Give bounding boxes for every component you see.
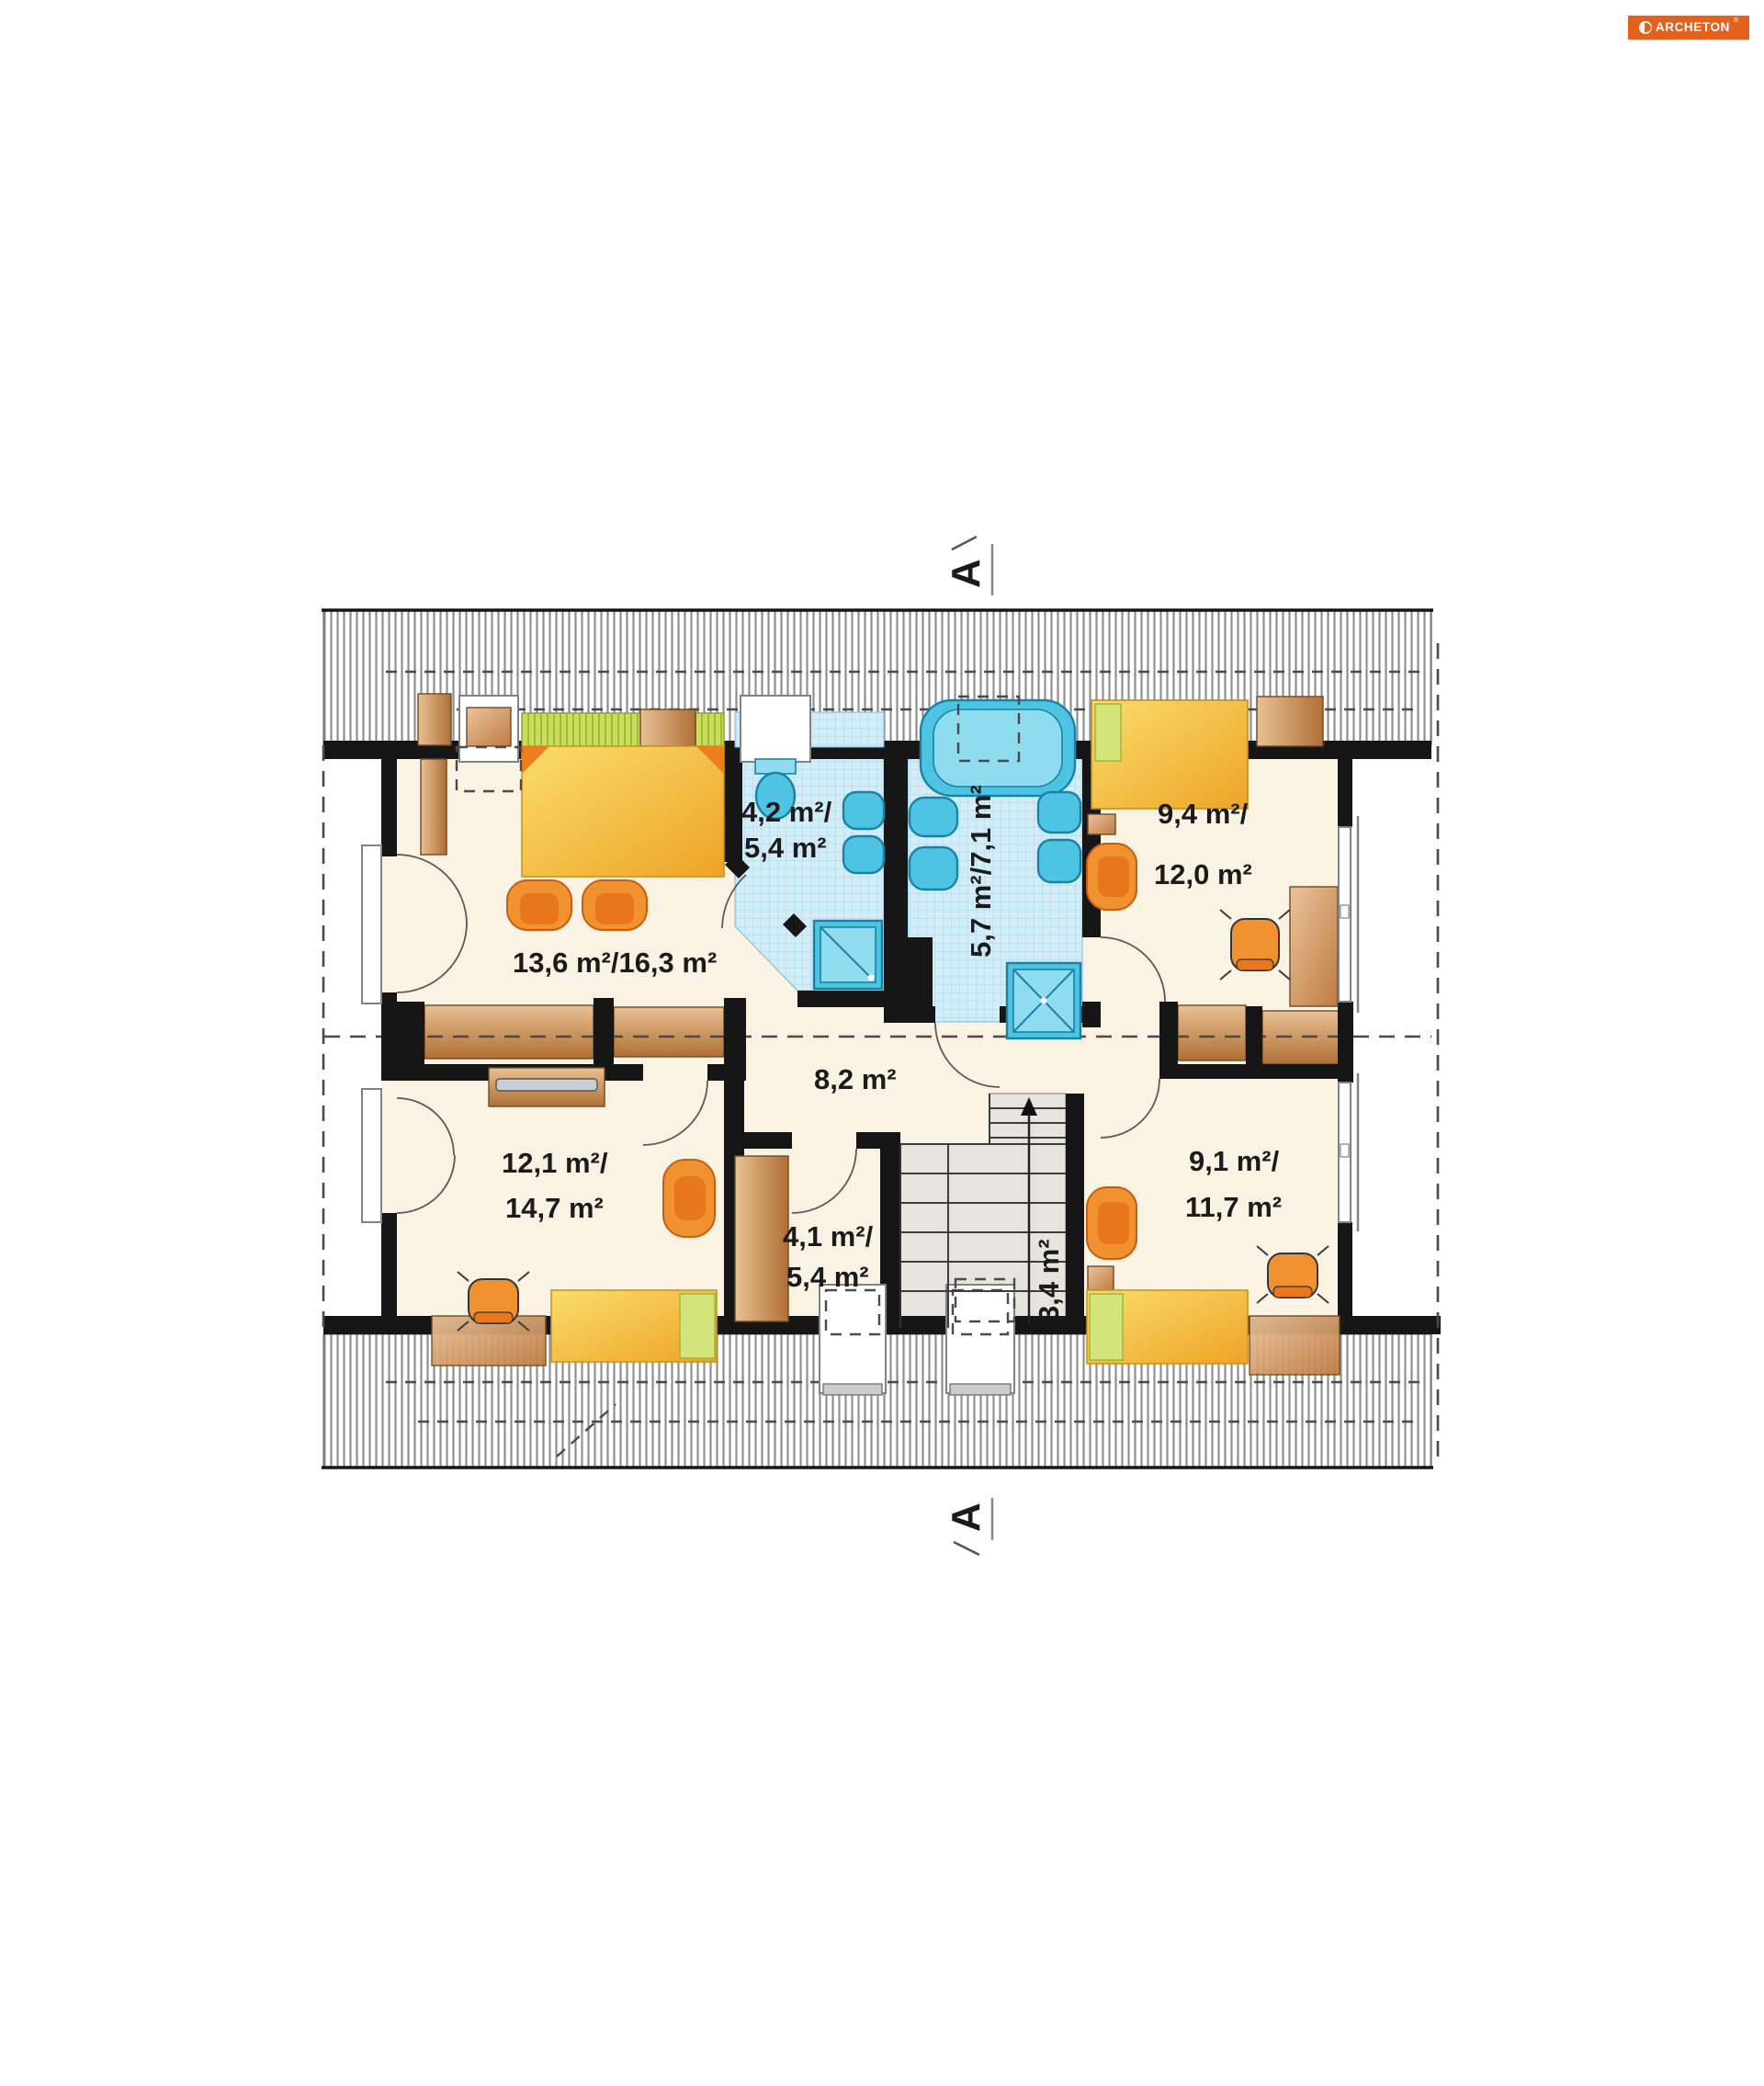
shower bbox=[1007, 963, 1080, 1038]
bed bbox=[551, 1290, 717, 1362]
area-label-hall: 8,2 m² bbox=[814, 1063, 897, 1095]
section-letter-bottom: A bbox=[944, 1502, 989, 1532]
area-label-room-top-right-2: 12,0 m² bbox=[1154, 858, 1252, 890]
bathtub bbox=[921, 697, 1075, 796]
office-chair bbox=[1257, 1246, 1329, 1303]
area-label-room-bottom-left-1: 12,1 m²/ bbox=[502, 1147, 608, 1179]
bed bbox=[1091, 700, 1248, 809]
shower bbox=[814, 921, 882, 989]
archeton-logo-icon bbox=[1639, 21, 1652, 34]
section-marker-bottom: A bbox=[944, 1498, 992, 1555]
area-label-bathroom-small-2: 5,4 m² bbox=[744, 832, 827, 864]
section-marker-top: A bbox=[944, 537, 992, 595]
floor-plan-page: ARCHETON ® bbox=[0, 0, 1764, 2086]
desk bbox=[1249, 1316, 1340, 1375]
area-label-bathroom-small-1: 4,2 m²/ bbox=[741, 796, 832, 828]
toilet bbox=[910, 798, 957, 836]
window bbox=[1339, 1073, 1358, 1231]
area-label-wardrobe-2: 5,4 m² bbox=[786, 1261, 869, 1293]
skylight-window bbox=[741, 696, 810, 762]
skylight-window bbox=[820, 1285, 886, 1395]
window bbox=[1339, 816, 1358, 1013]
shelf bbox=[489, 1068, 605, 1106]
armchair bbox=[663, 1160, 715, 1237]
armchair bbox=[582, 880, 647, 930]
bidet bbox=[910, 847, 957, 890]
area-label-wardrobe-1: 4,1 m²/ bbox=[783, 1220, 874, 1253]
area-label-bathroom-large: 5,7 m²/7,1 m² bbox=[965, 785, 997, 958]
desk bbox=[1290, 887, 1338, 1006]
registered-mark: ® bbox=[1734, 17, 1738, 24]
bed bbox=[1087, 1290, 1248, 1364]
area-label-room-bottom-left-2: 14,7 m² bbox=[505, 1192, 604, 1224]
archeton-logo-text: ARCHETON bbox=[1656, 21, 1730, 34]
archeton-logo: ARCHETON ® bbox=[1628, 16, 1749, 40]
area-label-bedroom-top-left: 13,6 m²/16,3 m² bbox=[513, 947, 717, 979]
skylight-window bbox=[459, 696, 518, 762]
attic-floor-plan: 13,6 m²/16,3 m² 4,2 m²/ 5,4 m² 5,7 m²/7,… bbox=[312, 528, 1442, 1567]
double-bed bbox=[522, 746, 724, 877]
area-label-room-bottom-right-2: 11,7 m² bbox=[1185, 1191, 1282, 1223]
armchair bbox=[507, 880, 571, 930]
office-chair bbox=[458, 1272, 529, 1331]
wardrobe-closet bbox=[735, 1156, 788, 1321]
area-label-room-bottom-right-1: 9,1 m²/ bbox=[1189, 1145, 1280, 1177]
section-letter-top: A bbox=[944, 559, 989, 588]
armchair bbox=[1087, 1187, 1136, 1259]
armchair bbox=[1087, 844, 1136, 910]
area-label-room-top-right-1: 9,4 m²/ bbox=[1158, 798, 1249, 830]
area-label-staircase: 3,4 m² bbox=[1033, 1239, 1065, 1321]
